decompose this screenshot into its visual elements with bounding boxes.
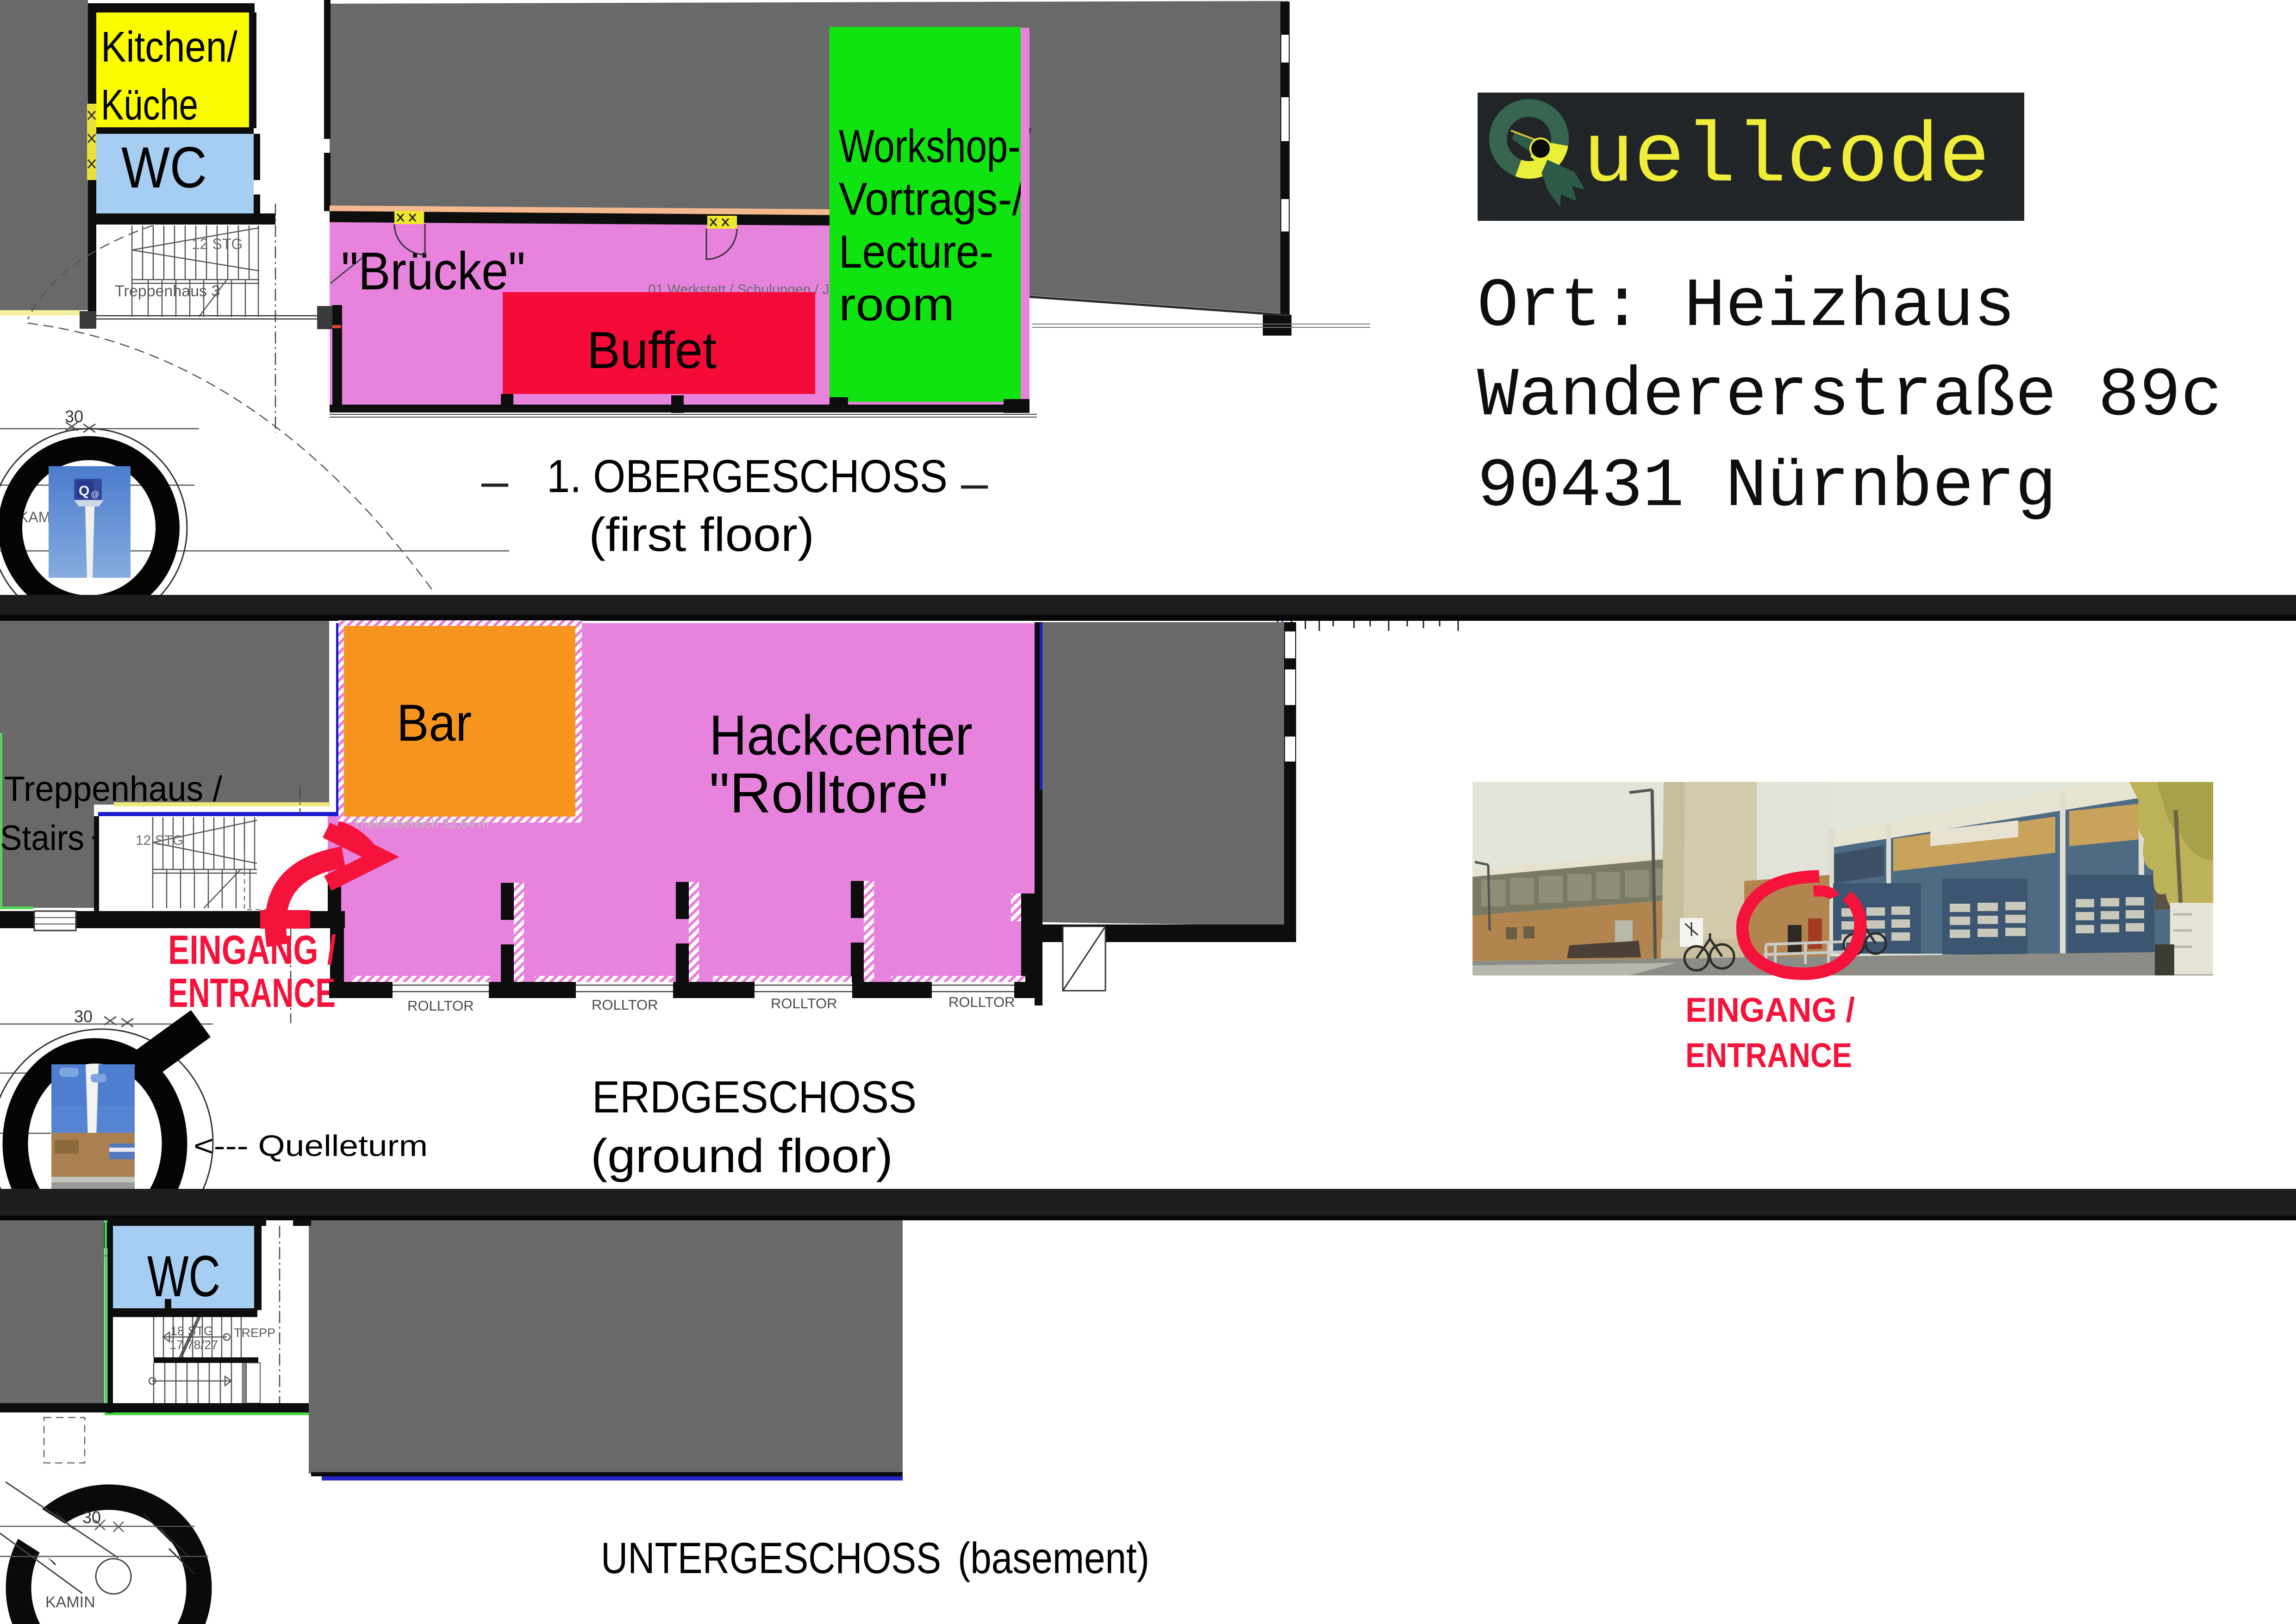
svg-text:(first floor): (first floor) bbox=[589, 508, 814, 561]
svg-text:Thekenbereich 32,64 m: Thekenbereich 32,64 m bbox=[353, 816, 489, 831]
svg-text:(ground floor): (ground floor) bbox=[591, 1129, 893, 1182]
svg-text:WC: WC bbox=[121, 136, 207, 200]
svg-text:room: room bbox=[839, 279, 955, 331]
svg-text:"Rolltore": "Rolltore" bbox=[709, 762, 948, 824]
svg-text:EINGANG /: EINGANG / bbox=[1685, 991, 1855, 1029]
svg-text:17,78/27: 17,78/27 bbox=[169, 1338, 218, 1352]
svg-text:(basement): (basement) bbox=[958, 1534, 1149, 1583]
svg-text:KAMIN: KAMIN bbox=[45, 1593, 95, 1611]
svg-text:Kitchen/: Kitchen/ bbox=[101, 23, 237, 71]
svg-text:90431 Nürnberg: 90431 Nürnberg bbox=[1477, 448, 2057, 526]
svg-text:12 STG: 12 STG bbox=[192, 236, 243, 252]
svg-text:30: 30 bbox=[74, 1007, 93, 1026]
svg-text:30: 30 bbox=[65, 407, 83, 426]
svg-text:Treppenhaus 3: Treppenhaus 3 bbox=[115, 282, 220, 300]
svg-text:ROLLTOR: ROLLTOR bbox=[948, 994, 1015, 1010]
svg-text:ROLLTOR: ROLLTOR bbox=[592, 997, 658, 1013]
svg-text:EINGANG /: EINGANG / bbox=[168, 927, 336, 973]
svg-text:Treppenhaus /: Treppenhaus / bbox=[4, 769, 223, 809]
svg-text:Küche: Küche bbox=[101, 81, 198, 129]
svg-text:Ort: Heizhaus: Ort: Heizhaus bbox=[1477, 268, 2015, 346]
svg-text:Buffet: Buffet bbox=[587, 321, 717, 379]
svg-text:@: @ bbox=[91, 490, 99, 499]
svg-text:TREPP: TREPP bbox=[234, 1326, 275, 1340]
svg-text:Bar: Bar bbox=[397, 694, 472, 752]
svg-text:ENTRANCE: ENTRANCE bbox=[168, 970, 336, 1016]
svg-text:<--- Quelleturm: <--- Quelleturm bbox=[193, 1129, 428, 1162]
svg-text:Wandererstraße 89c: Wandererstraße 89c bbox=[1477, 357, 2222, 435]
svg-text:Lecture-: Lecture- bbox=[839, 226, 993, 278]
svg-text:ROLLTOR: ROLLTOR bbox=[407, 998, 474, 1014]
svg-text:ROLLTOR: ROLLTOR bbox=[771, 995, 837, 1012]
svg-text:UNTERGESCHOSS: UNTERGESCHOSS bbox=[601, 1534, 941, 1583]
svg-text:Vortrags-/: Vortrags-/ bbox=[839, 173, 1024, 225]
svg-text:uellcode: uellcode bbox=[1583, 110, 1990, 206]
svg-text:ERDGESCHOSS: ERDGESCHOSS bbox=[592, 1072, 917, 1122]
svg-text:12 STG: 12 STG bbox=[136, 833, 183, 848]
svg-text:Workshop-/: Workshop-/ bbox=[839, 120, 1031, 172]
svg-text:30: 30 bbox=[82, 1508, 101, 1527]
svg-text:WC: WC bbox=[147, 1244, 220, 1309]
svg-text:Q: Q bbox=[79, 483, 89, 499]
svg-text:"Brücke": "Brücke" bbox=[341, 242, 525, 301]
svg-text:Stairs: Stairs bbox=[0, 818, 84, 858]
svg-text:1. OBERGESCHOSS: 1. OBERGESCHOSS bbox=[547, 450, 948, 502]
svg-text:Hackcenter: Hackcenter bbox=[709, 704, 973, 767]
svg-text:ENTRANCE: ENTRANCE bbox=[1685, 1036, 1852, 1074]
